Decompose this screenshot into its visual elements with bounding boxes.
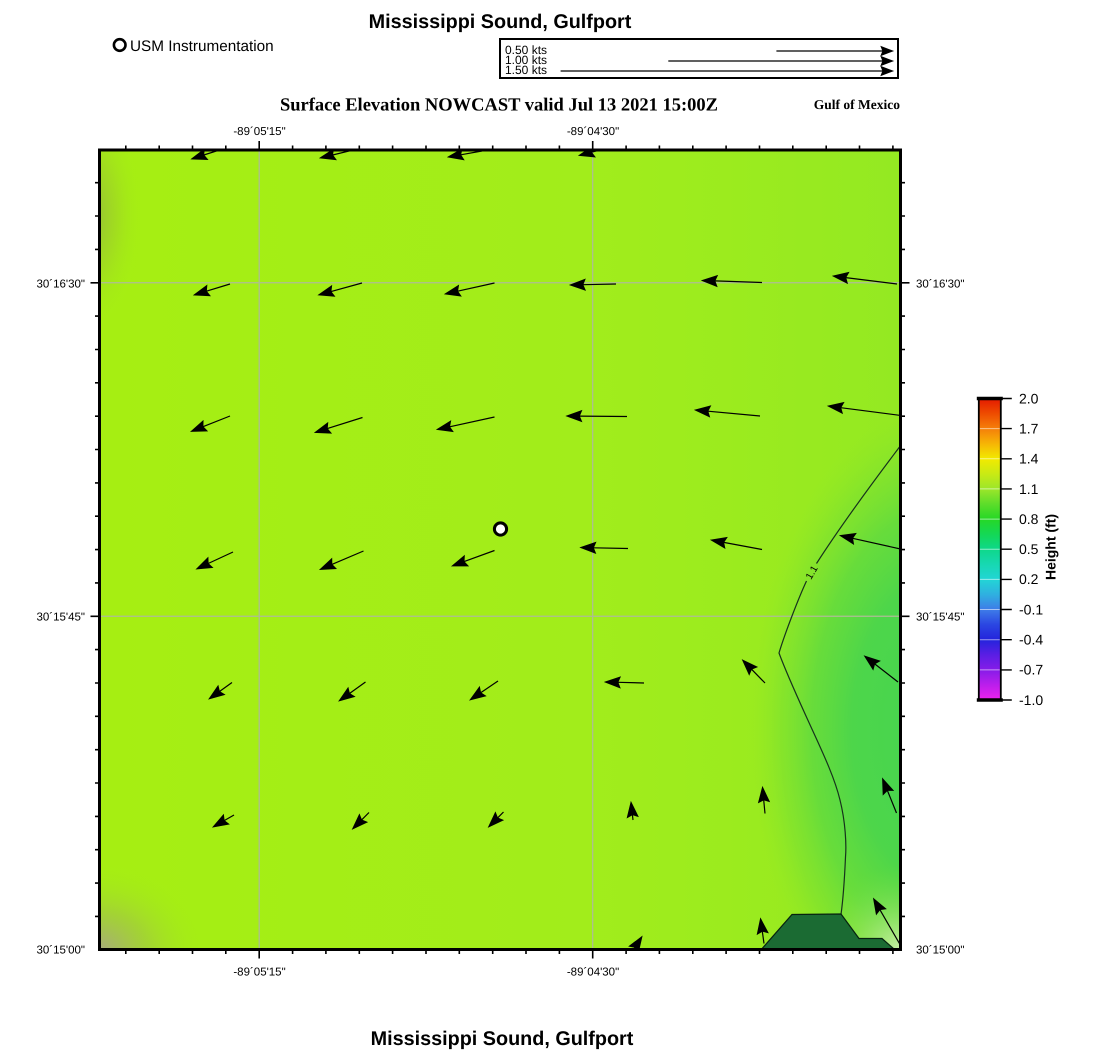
svg-text:USM Instrumentation: USM Instrumentation xyxy=(130,38,274,55)
svg-text:Surface Elevation NOWCAST vali: Surface Elevation NOWCAST valid Jul 13 2… xyxy=(280,96,718,116)
svg-text:30´15'00": 30´15'00" xyxy=(916,945,964,957)
svg-text:-89´05'15": -89´05'15" xyxy=(233,126,285,138)
svg-text:1.1: 1.1 xyxy=(1019,481,1039,497)
svg-text:30´16'30": 30´16'30" xyxy=(37,279,85,291)
svg-text:-89´05'15": -89´05'15" xyxy=(233,967,285,979)
svg-text:Height (ft): Height (ft) xyxy=(1043,514,1059,580)
svg-text:-1.0: -1.0 xyxy=(1019,692,1043,708)
svg-text:0.2: 0.2 xyxy=(1019,571,1039,587)
svg-text:30´15'45": 30´15'45" xyxy=(37,612,85,624)
svg-text:Mississippi Sound, Gulfport: Mississippi Sound, Gulfport xyxy=(371,1028,634,1050)
svg-text:-89´04'30": -89´04'30" xyxy=(567,967,619,979)
svg-text:Gulf of Mexico: Gulf of Mexico xyxy=(814,97,900,112)
svg-text:1.50 kts: 1.50 kts xyxy=(505,63,547,77)
svg-text:1.7: 1.7 xyxy=(1019,420,1039,436)
svg-text:-89´04'30": -89´04'30" xyxy=(567,126,619,138)
svg-text:2.0: 2.0 xyxy=(1019,390,1039,406)
svg-text:30´15'45": 30´15'45" xyxy=(916,612,964,624)
svg-text:0.8: 0.8 xyxy=(1019,511,1039,527)
svg-text:-0.7: -0.7 xyxy=(1019,662,1043,678)
svg-text:1.4: 1.4 xyxy=(1019,451,1039,467)
svg-text:30´16'30": 30´16'30" xyxy=(916,279,964,291)
svg-text:-0.4: -0.4 xyxy=(1019,632,1043,648)
svg-text:0.5: 0.5 xyxy=(1019,541,1039,557)
svg-text:-0.1: -0.1 xyxy=(1019,601,1043,617)
svg-text:30´15'00": 30´15'00" xyxy=(37,945,85,957)
svg-text:Mississippi Sound, Gulfport: Mississippi Sound, Gulfport xyxy=(369,11,632,33)
